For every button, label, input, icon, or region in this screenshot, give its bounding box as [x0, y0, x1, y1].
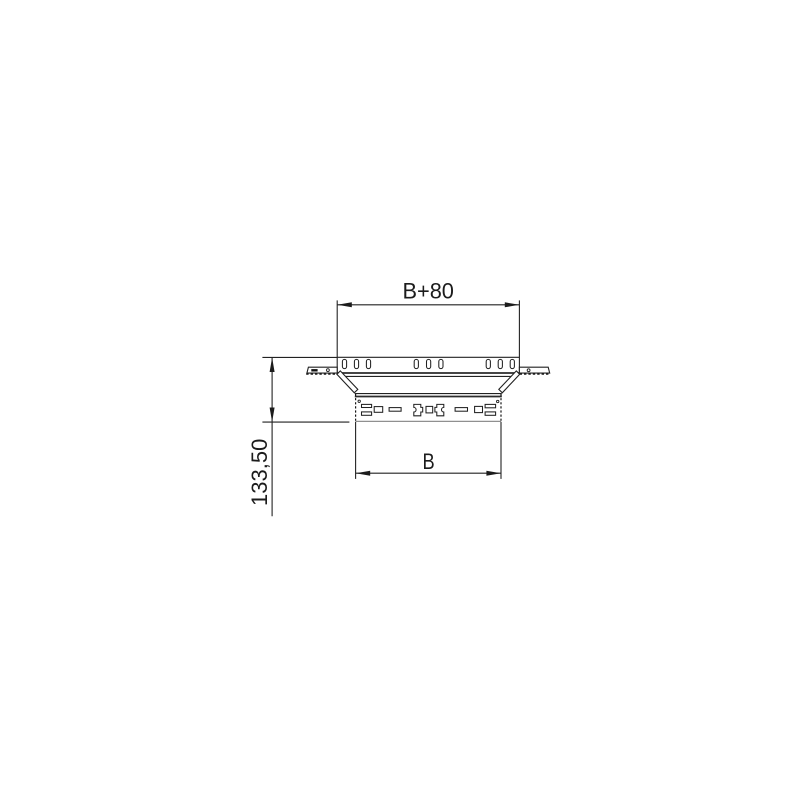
- svg-text:B+80: B+80: [402, 279, 454, 304]
- svg-text:B: B: [423, 449, 435, 474]
- svg-text:133,50: 133,50: [247, 439, 272, 506]
